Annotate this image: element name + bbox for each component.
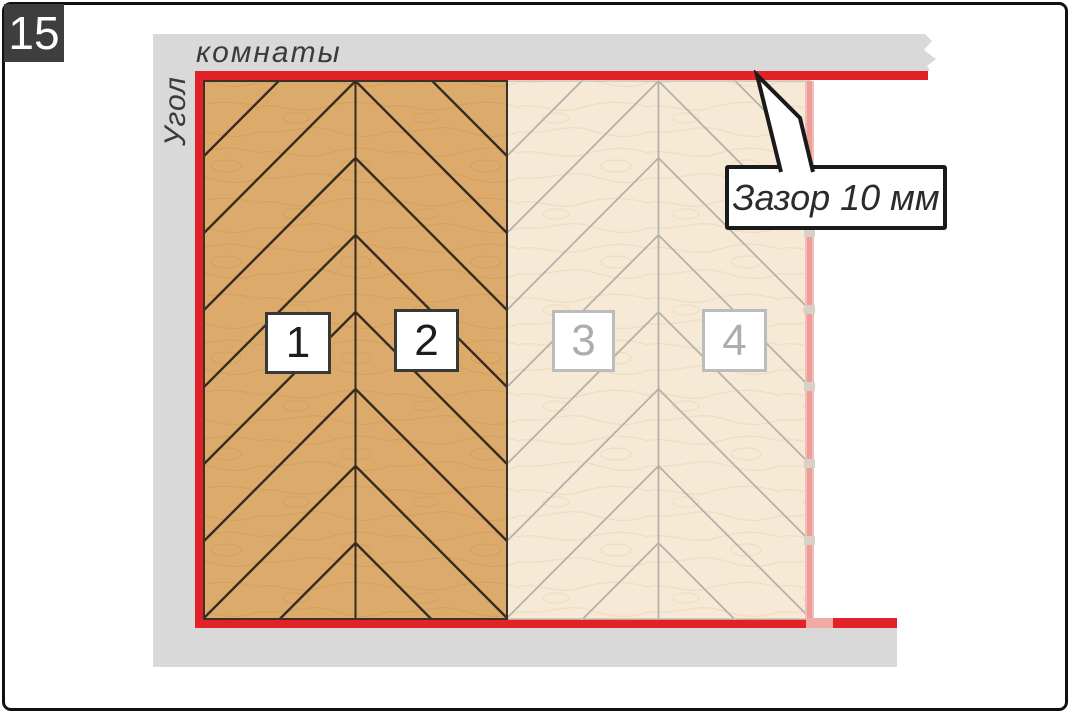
wall-label-vertical: Угол [160, 50, 192, 172]
step-number: 15 [8, 6, 59, 60]
wall-label-horizontal-text: комнаты [196, 36, 342, 70]
gap-callout-text: Зазор 10 мм [732, 177, 939, 219]
panel-number-2: 2 [394, 309, 459, 372]
panel-number-3-label: 3 [571, 316, 595, 366]
panel-number-4-label: 4 [722, 316, 746, 366]
callout-pointer [740, 70, 830, 180]
panel-number-1: 1 [265, 312, 331, 374]
wall-label-horizontal: комнаты [196, 36, 396, 70]
wall-bottom-strip [153, 627, 897, 667]
panel-number-4: 4 [702, 309, 767, 372]
expansion-gap-line-left [195, 71, 204, 628]
faded-gap-strip-bottom [806, 618, 833, 628]
step-number-badge: 15 [4, 4, 64, 62]
panel-number-2-label: 2 [414, 316, 438, 366]
panel-number-1-label: 1 [286, 318, 310, 368]
wall-label-vertical-text: Угол [159, 76, 193, 146]
panel-number-3: 3 [552, 310, 615, 372]
